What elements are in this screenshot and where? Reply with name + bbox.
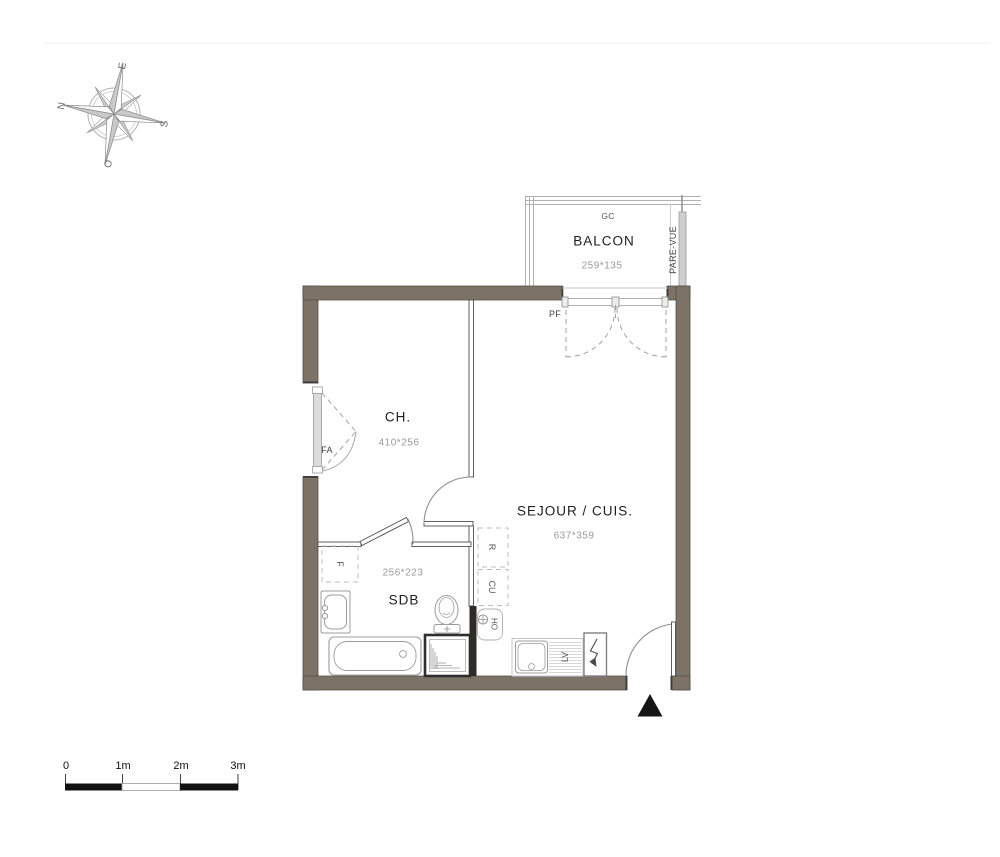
washbasin	[321, 591, 350, 633]
utility-duct	[584, 633, 607, 676]
cu-label: CU	[487, 581, 497, 594]
pare-vue-screen	[679, 212, 686, 286]
balcony-label: BALCON	[573, 234, 635, 249]
f-label: F	[335, 561, 345, 567]
bathroom-door-swing	[408, 519, 413, 544]
pf-label: PF	[549, 309, 561, 319]
floor-plan-drawing	[0, 0, 1000, 857]
balcony-dim: 259*135	[582, 261, 623, 272]
toilet	[434, 596, 460, 634]
bathroom-dim: 256*223	[383, 568, 424, 579]
divider-line	[45, 43, 990, 44]
scale-tick-3: 3m	[230, 760, 245, 772]
bedroom-dim: 410*256	[379, 438, 420, 449]
floor-plan-page: E N S O GC BALCON 259*135 PARE-VUE PF FA…	[0, 0, 1000, 857]
bathtub	[329, 637, 421, 675]
r-label: R	[487, 544, 497, 551]
lv-label: LV	[560, 652, 570, 662]
balcony-door	[562, 288, 668, 357]
interior-walls	[318, 300, 474, 606]
bathroom-door-leaf	[360, 518, 409, 546]
shower-duct	[425, 635, 470, 676]
bedroom-window	[313, 387, 357, 473]
entrance-door-swing	[626, 624, 673, 676]
scale-bar	[65, 774, 238, 791]
compass-label-west: O	[103, 159, 115, 169]
compass-rose-icon	[54, 54, 174, 174]
bedroom-door	[424, 477, 471, 524]
entrance-arrow-icon	[638, 694, 663, 717]
kitchen-sink	[516, 641, 548, 673]
scale-tick-2: 2m	[173, 760, 188, 772]
living-kitchen-label: SEJOUR / CUIS.	[517, 504, 633, 519]
ho-label: HO	[489, 618, 498, 630]
pare-vue-label: PARE-VUE	[668, 226, 678, 274]
kitchen-counter	[512, 639, 583, 677]
gc-label: GC	[601, 211, 614, 221]
bedroom-label: CH.	[385, 410, 411, 425]
bathroom-label: SDB	[389, 593, 420, 608]
scale-tick-0: 0	[63, 760, 69, 772]
living-kitchen-dim: 637*359	[554, 531, 595, 542]
fa-label: FA	[321, 445, 333, 455]
scale-tick-1: 1m	[115, 760, 130, 772]
entrance-door-leaf	[672, 622, 676, 676]
